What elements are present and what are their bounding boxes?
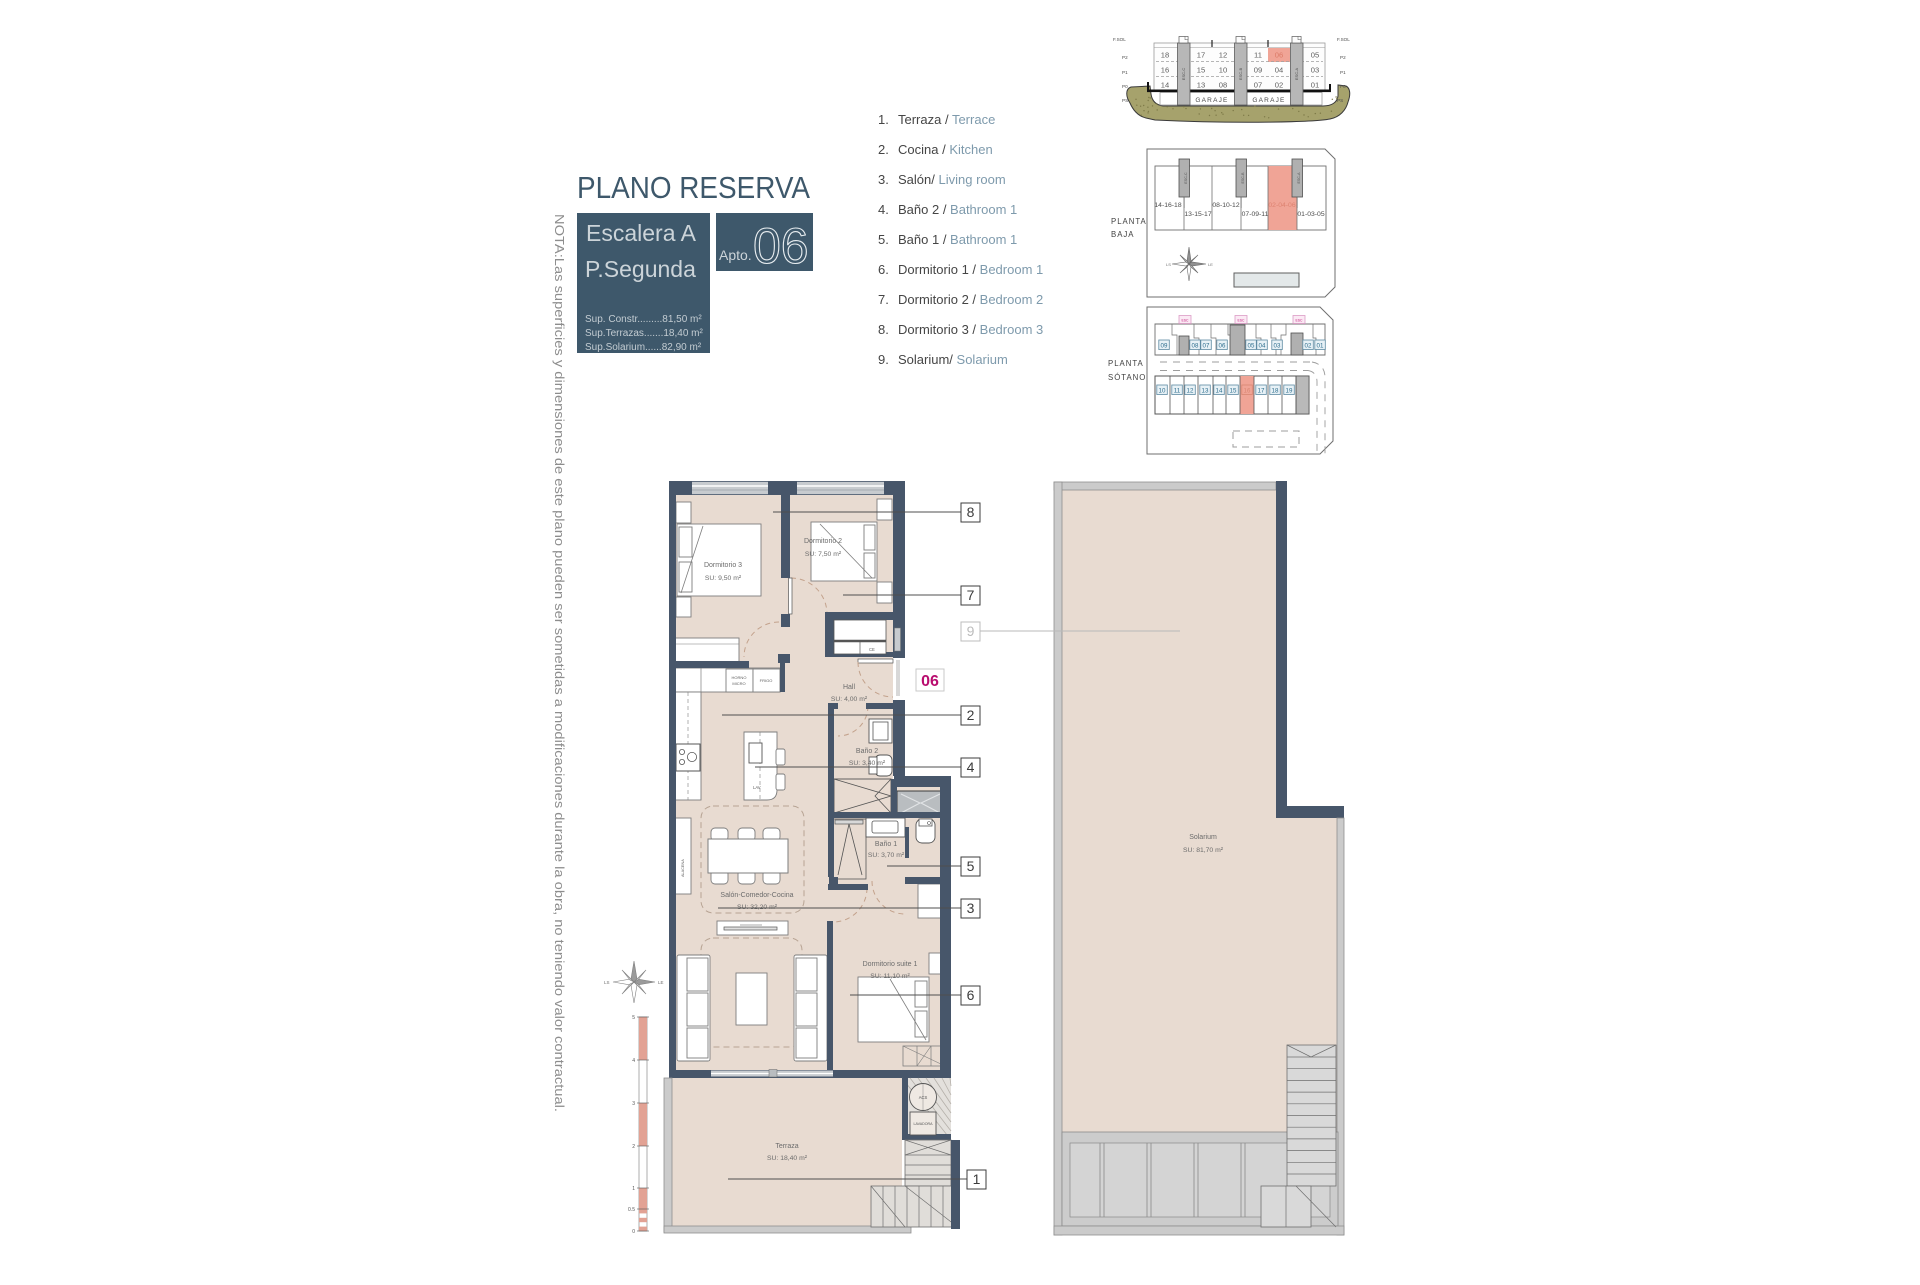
- svg-text:Baño 2 / Bathroom 1: Baño 2 / Bathroom 1: [898, 202, 1017, 217]
- svg-text:Sup.Terrazas.......18,40 m²: Sup.Terrazas.......18,40 m²: [585, 328, 703, 339]
- svg-text:09: 09: [1161, 342, 1168, 349]
- svg-text:3: 3: [632, 1101, 635, 1107]
- svg-text:F.SOL: F.SOL: [1337, 37, 1350, 42]
- svg-text:1.: 1.: [878, 112, 889, 127]
- svg-text:P2: P2: [1122, 55, 1128, 60]
- svg-text:P.Segunda: P.Segunda: [585, 256, 696, 282]
- svg-text:03: 03: [1311, 66, 1319, 75]
- svg-text:Salón/ Living room: Salón/ Living room: [898, 172, 1006, 187]
- svg-text:FRIGO: FRIGO: [760, 678, 773, 683]
- svg-text:Sup. Constr.........81,50 m²: Sup. Constr.........81,50 m²: [585, 314, 702, 325]
- svg-text:MICRO: MICRO: [732, 681, 745, 686]
- svg-text:14: 14: [1161, 81, 1169, 90]
- svg-text:Sup.Solarium......82,90 m²: Sup.Solarium......82,90 m²: [585, 342, 702, 353]
- svg-text:6: 6: [967, 987, 975, 1003]
- svg-text:GARAJE: GARAJE: [1252, 97, 1285, 104]
- svg-text:P0: P0: [1122, 84, 1128, 89]
- svg-text:19: 19: [1286, 387, 1293, 394]
- svg-text:13-15-17: 13-15-17: [1184, 211, 1211, 218]
- svg-text:06: 06: [1219, 342, 1226, 349]
- svg-text:Escalera A: Escalera A: [586, 220, 697, 246]
- svg-text:0: 0: [632, 1229, 635, 1235]
- svg-text:LE: LE: [658, 980, 664, 985]
- svg-text:ESC-A: ESC-A: [1294, 68, 1299, 81]
- svg-text:10: 10: [1159, 387, 1166, 394]
- svg-text:9: 9: [967, 623, 975, 639]
- svg-text:SU: 7,50 m²: SU: 7,50 m²: [805, 551, 842, 558]
- svg-text:LAVADORA: LAVADORA: [913, 1122, 933, 1126]
- svg-text:0.5: 0.5: [628, 1207, 635, 1213]
- svg-text:HORNO: HORNO: [732, 675, 747, 680]
- svg-text:GARAJE: GARAJE: [1195, 97, 1228, 104]
- svg-text:12: 12: [1187, 387, 1194, 394]
- svg-text:05: 05: [1248, 342, 1255, 349]
- svg-text:2: 2: [967, 707, 975, 723]
- svg-text:SU: 11,10 m²: SU: 11,10 m²: [870, 973, 910, 980]
- svg-text:3: 3: [967, 900, 975, 916]
- svg-text:06: 06: [1275, 51, 1283, 60]
- svg-text:PS: PS: [1337, 98, 1343, 103]
- svg-text:08: 08: [1219, 81, 1227, 90]
- svg-text:08: 08: [1192, 342, 1199, 349]
- svg-text:17: 17: [1258, 387, 1265, 394]
- svg-text:Baño 2: Baño 2: [856, 748, 878, 755]
- svg-text:11: 11: [1174, 387, 1181, 394]
- svg-text:4: 4: [967, 759, 975, 775]
- svg-text:1: 1: [973, 1171, 981, 1187]
- svg-text:Apto.: Apto.: [719, 247, 752, 263]
- svg-text:Baño 1: Baño 1: [875, 841, 897, 848]
- svg-text:SU: 4,00 m²: SU: 4,00 m²: [831, 696, 868, 703]
- svg-text:4: 4: [632, 1058, 635, 1064]
- svg-text:Terraza: Terraza: [775, 1143, 798, 1150]
- svg-text:P2: P2: [1340, 55, 1346, 60]
- svg-text:NOTA:Las superficies y dimensi: NOTA:Las superficies y dimensiones de es…: [552, 214, 567, 1112]
- svg-text:Dormitorio 2 / Bedroom 2: Dormitorio 2 / Bedroom 2: [898, 292, 1043, 307]
- svg-text:ESC: ESC: [1182, 319, 1190, 323]
- svg-text:7: 7: [967, 587, 975, 603]
- svg-text:Salón-Comedor-Cocina: Salón-Comedor-Cocina: [720, 892, 793, 899]
- svg-text:BAJA: BAJA: [1111, 230, 1135, 239]
- svg-text:02: 02: [1275, 81, 1283, 90]
- svg-text:Dormitorio 3: Dormitorio 3: [704, 562, 742, 569]
- svg-text:Hall: Hall: [843, 684, 856, 691]
- svg-text:P0: P0: [1340, 84, 1346, 89]
- svg-text:7.: 7.: [878, 292, 889, 307]
- svg-text:Dormitorio 2: Dormitorio 2: [804, 538, 842, 545]
- svg-text:9.: 9.: [878, 352, 889, 367]
- svg-text:01: 01: [1311, 81, 1319, 90]
- svg-text:ESC-B: ESC-B: [1241, 172, 1245, 184]
- svg-text:LAV: LAV: [753, 785, 761, 790]
- svg-text:Dormitorio 1 / Bedroom 1: Dormitorio 1 / Bedroom 1: [898, 262, 1043, 277]
- svg-text:PLANTA: PLANTA: [1111, 217, 1147, 226]
- svg-text:04: 04: [1275, 66, 1283, 75]
- svg-text:LS: LS: [1166, 262, 1171, 267]
- svg-text:ACS: ACS: [919, 1095, 928, 1100]
- svg-text:PS: PS: [1122, 98, 1128, 103]
- svg-text:2: 2: [632, 1144, 635, 1150]
- svg-text:06: 06: [753, 218, 809, 274]
- svg-text:LS: LS: [604, 980, 610, 985]
- svg-text:01-03-05: 01-03-05: [1297, 211, 1324, 218]
- svg-text:14-16-18: 14-16-18: [1154, 202, 1181, 209]
- svg-text:F.SOL: F.SOL: [1113, 37, 1126, 42]
- svg-text:Dormitorio suite 1: Dormitorio suite 1: [863, 961, 918, 968]
- svg-text:04: 04: [1259, 342, 1266, 349]
- svg-text:5: 5: [632, 1015, 635, 1021]
- svg-text:ESC: ESC: [1296, 319, 1304, 323]
- svg-text:3.: 3.: [878, 172, 889, 187]
- svg-text:06: 06: [921, 673, 939, 690]
- svg-text:2.: 2.: [878, 142, 889, 157]
- svg-text:15: 15: [1230, 387, 1237, 394]
- svg-text:ESC-A: ESC-A: [1297, 172, 1301, 184]
- svg-text:SU: 3,40 m²: SU: 3,40 m²: [849, 760, 886, 767]
- svg-text:PLANO RESERVA: PLANO RESERVA: [577, 170, 810, 205]
- svg-text:09: 09: [1254, 66, 1262, 75]
- svg-text:02-04-06: 02-04-06: [1268, 202, 1295, 209]
- svg-text:18: 18: [1161, 51, 1169, 60]
- svg-text:16: 16: [1244, 387, 1251, 394]
- svg-text:07-09-11: 07-09-11: [1242, 211, 1269, 218]
- svg-text:5: 5: [967, 858, 975, 874]
- svg-text:08-10-12: 08-10-12: [1212, 202, 1239, 209]
- svg-text:4.: 4.: [878, 202, 889, 217]
- svg-text:07: 07: [1203, 342, 1210, 349]
- svg-text:SÓTANO: SÓTANO: [1108, 373, 1146, 382]
- svg-text:07: 07: [1254, 81, 1262, 90]
- svg-text:ESC: ESC: [1238, 319, 1246, 323]
- svg-text:13: 13: [1202, 387, 1209, 394]
- svg-text:1: 1: [632, 1186, 635, 1192]
- svg-text:03: 03: [1274, 342, 1281, 349]
- svg-text:Solarium: Solarium: [1189, 834, 1217, 841]
- svg-text:11: 11: [1254, 51, 1262, 60]
- svg-text:13: 13: [1197, 81, 1205, 90]
- svg-text:8: 8: [967, 504, 975, 520]
- svg-text:PLANTA: PLANTA: [1108, 359, 1144, 368]
- svg-text:Baño 1 / Bathroom 1: Baño 1 / Bathroom 1: [898, 232, 1017, 247]
- svg-text:Solarium/ Solarium: Solarium/ Solarium: [898, 352, 1008, 367]
- svg-text:18: 18: [1272, 387, 1279, 394]
- svg-text:ESC-B: ESC-B: [1238, 68, 1243, 81]
- svg-text:LE: LE: [1208, 262, 1213, 267]
- svg-text:02: 02: [1305, 342, 1312, 349]
- svg-text:SU: 3,70 m²: SU: 3,70 m²: [868, 852, 905, 859]
- svg-text:P1: P1: [1122, 70, 1128, 75]
- svg-text:01: 01: [1317, 342, 1324, 349]
- svg-text:17: 17: [1197, 51, 1205, 60]
- svg-text:12: 12: [1219, 51, 1227, 60]
- svg-text:Terraza / Terrace: Terraza / Terrace: [898, 112, 995, 127]
- svg-text:SU: 18,40 m²: SU: 18,40 m²: [767, 1155, 808, 1162]
- svg-text:5.: 5.: [878, 232, 889, 247]
- svg-text:SU: 81,70 m²: SU: 81,70 m²: [1183, 847, 1224, 854]
- svg-text:15: 15: [1197, 66, 1205, 75]
- svg-text:Cocina / Kitchen: Cocina / Kitchen: [898, 142, 993, 157]
- svg-text:16: 16: [1161, 66, 1169, 75]
- svg-text:14: 14: [1216, 387, 1223, 394]
- svg-text:05: 05: [1311, 51, 1319, 60]
- svg-text:SU: 32,20 m²: SU: 32,20 m²: [737, 904, 778, 911]
- svg-text:CE: CE: [869, 647, 875, 652]
- svg-text:6.: 6.: [878, 262, 889, 277]
- svg-text:10: 10: [1219, 66, 1227, 75]
- svg-text:ESC-C: ESC-C: [1181, 68, 1186, 81]
- svg-text:P1: P1: [1340, 70, 1346, 75]
- svg-text:8.: 8.: [878, 322, 889, 337]
- svg-text:SU: 9,50 m²: SU: 9,50 m²: [705, 575, 742, 582]
- svg-text:Dormitorio 3 / Bedroom 3: Dormitorio 3 / Bedroom 3: [898, 322, 1043, 337]
- svg-text:ALACENA: ALACENA: [681, 859, 685, 877]
- svg-text:ESC-C: ESC-C: [1184, 172, 1188, 184]
